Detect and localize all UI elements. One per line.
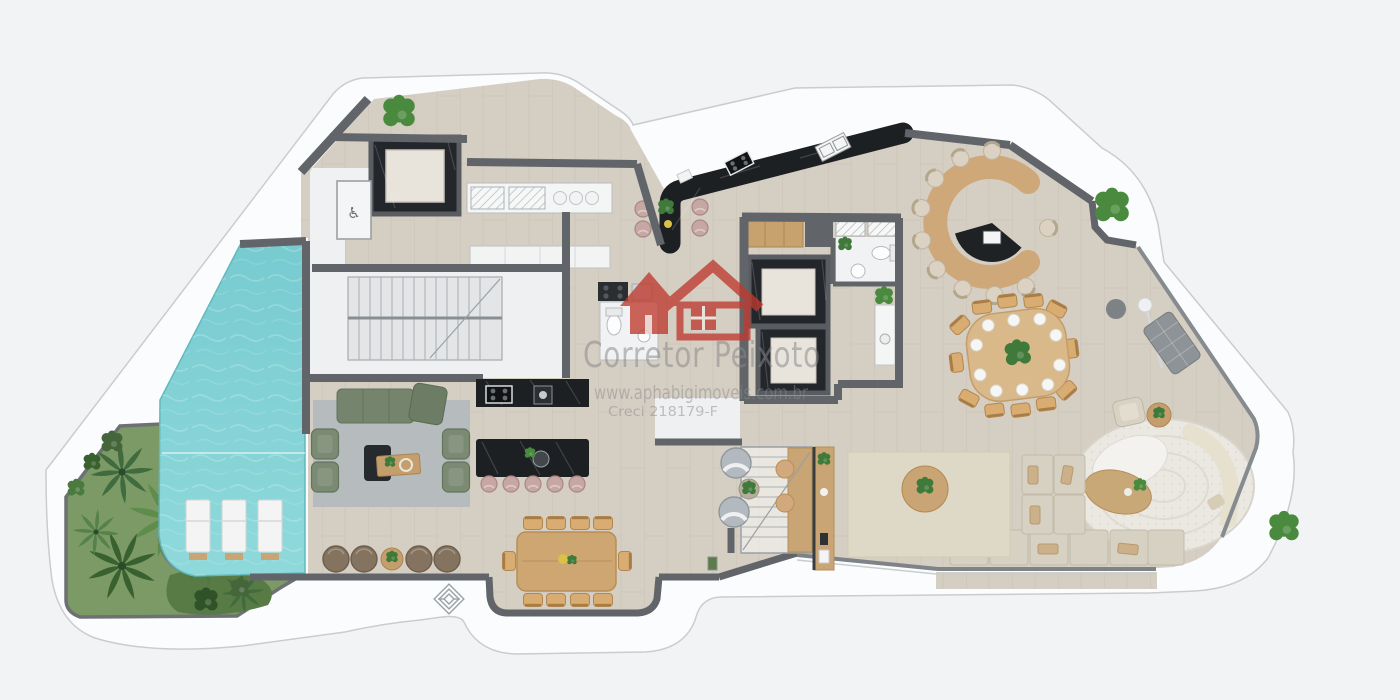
accessible-wc: ♿ [337,181,371,239]
island-sink [533,451,549,467]
chair [524,594,543,607]
chair [503,552,516,571]
cushion [1038,544,1058,554]
floor-lamp [1138,298,1152,312]
chair [594,594,613,607]
wood-tray-table [376,453,420,476]
plant [742,481,756,495]
drain-grill [509,187,545,209]
island-stool [525,476,541,492]
cooktop [486,386,512,403]
sun-lounger [222,500,246,560]
cushion [1030,506,1040,524]
sofa-chaise [408,382,448,425]
chair [949,352,964,372]
shrub [68,479,85,496]
sun-lounger [186,500,210,560]
green-living-set [312,382,471,507]
toilet [872,247,890,260]
chair [619,552,632,571]
chair [1040,220,1057,237]
table-plant [917,477,934,494]
service-elevator [371,137,459,214]
round-lounge-chair [721,448,751,478]
centerpiece [558,554,568,564]
wheelchair-accessible-icon: ♿ [347,204,360,222]
plant [1153,407,1165,419]
green-armchair [443,429,470,459]
pouf-row [323,546,460,572]
green-armchair [443,462,470,492]
floor-plan-rendering: ♿ [0,0,1400,700]
chair [972,299,992,314]
shrub [194,587,217,610]
round-sink [554,192,567,205]
chair [1011,402,1031,417]
watermark-brand: Corretor Peixoto [583,335,821,376]
plant [385,456,396,467]
bottle [820,533,828,545]
lounge-rug-area [848,452,1010,557]
wall-art [708,557,717,570]
bar-stool [692,199,708,215]
internal-staircase [741,447,834,570]
chair [997,293,1017,308]
chair [524,517,543,530]
floor-pouf [351,546,377,572]
wall-block [805,221,833,247]
shrub [231,578,250,597]
floor-pouf [434,546,460,572]
centerpiece-plant [567,555,576,564]
island-stool [503,476,519,492]
island-stool [481,476,497,492]
chair [1023,293,1043,308]
planter-shrub [1095,188,1129,222]
island-stool [569,476,585,492]
watermark-license: Creci 218179-F [608,405,718,420]
service-staircase [348,277,502,360]
chair [571,594,590,607]
menu-card [819,550,829,563]
chair [984,142,1001,159]
chair [594,517,613,530]
counter-plant [818,452,831,465]
green-armchair [312,429,339,459]
floor-pouf [406,546,432,572]
toilet [607,315,621,335]
round-lounge-chair [719,497,749,527]
cooktop [598,282,628,301]
chair [984,403,1004,418]
plant [838,237,852,251]
shrub [102,431,123,452]
chair [1036,396,1056,411]
chair [547,517,566,530]
plant [875,286,893,304]
shrub [84,453,101,470]
cup [820,488,828,496]
chair [571,517,590,530]
island-stool [547,476,563,492]
chair [547,594,566,607]
round-sink [586,192,599,205]
green-armchair [312,462,339,492]
cushion [1028,466,1038,484]
round-sink [570,192,583,205]
wood-cabinet [746,221,803,247]
deck-plant [1269,511,1298,540]
table-plant [1134,478,1147,491]
bar-stool [635,221,651,237]
watermark-website: www.aphabigimoveis.com.br [594,382,808,404]
sun-lounger [258,500,282,560]
step-pouf [776,460,794,478]
washbasin [851,264,865,278]
decor-bowl [1124,488,1132,496]
corridor [310,240,345,378]
presentation-screen [983,231,1001,244]
step-pouf [776,494,794,512]
floor-plan-canvas: ♿ [0,0,1400,700]
floor-pouf [323,546,349,572]
counter-sink [880,334,890,344]
shelf [836,220,865,236]
fruit-bowl [664,220,672,228]
green-sofa [337,389,414,423]
armchair [1112,396,1147,428]
terrace-plant [383,95,415,127]
plant [525,447,536,458]
cushion [1118,543,1139,555]
bar-stool [692,220,708,236]
side-stool [1106,299,1126,319]
plant [386,551,398,563]
counter-plant [658,198,674,214]
drain-grill [471,187,504,209]
